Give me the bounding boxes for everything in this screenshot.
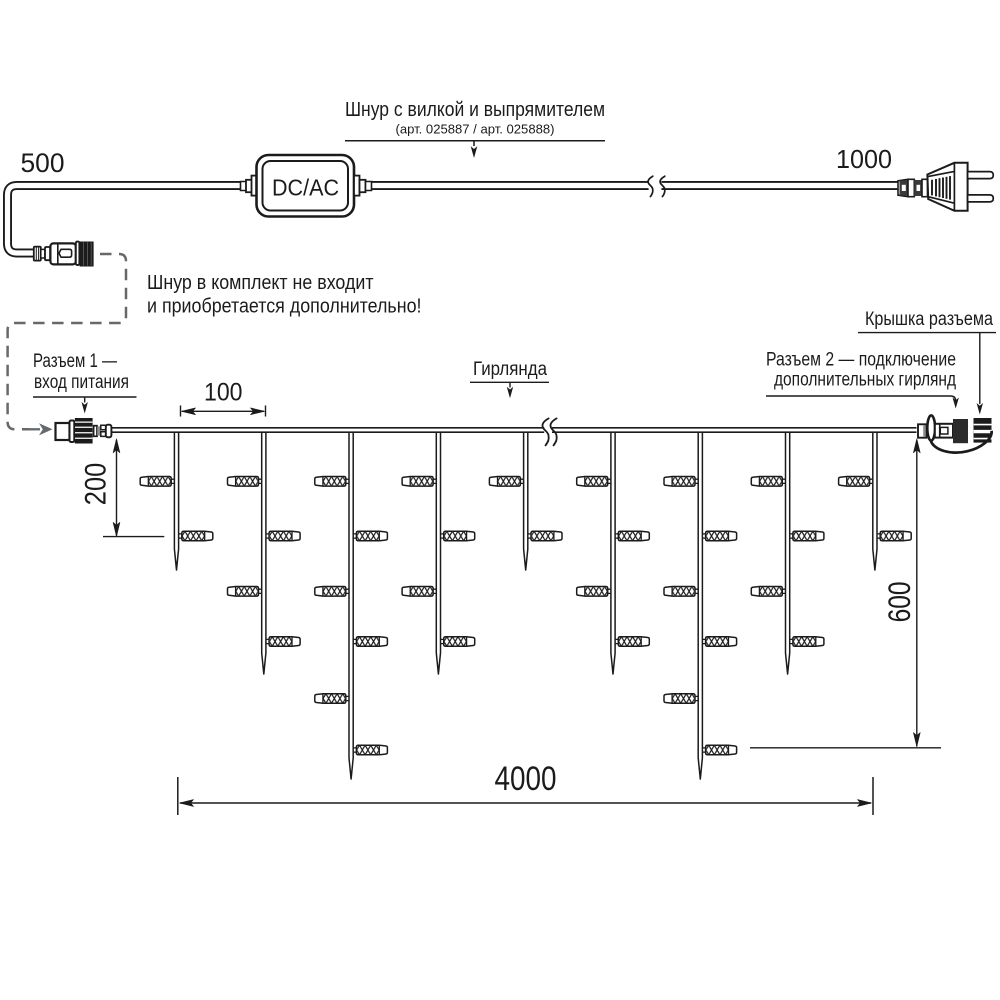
svg-text:вход питания: вход питания	[34, 372, 129, 393]
svg-text:дополнительных гирлянд: дополнительных гирлянд	[774, 370, 956, 391]
svg-text:Шнур в комплект не входит: Шнур в комплект не входит	[147, 271, 374, 294]
svg-text:Разъем 2 — подключение: Разъем 2 — подключение	[766, 350, 956, 371]
svg-text:Гирлянда: Гирлянда	[473, 359, 547, 380]
svg-text:600: 600	[881, 581, 917, 622]
svg-text:DC/AC: DC/AC	[272, 175, 339, 201]
svg-text:Разъем 1 —: Разъем 1 —	[33, 351, 117, 372]
svg-text:(арт. 025887 / арт. 025888): (арт. 025887 / арт. 025888)	[396, 122, 555, 137]
svg-text:4000: 4000	[495, 760, 557, 798]
svg-text:200: 200	[80, 463, 113, 506]
svg-text:500: 500	[21, 148, 65, 178]
svg-text:Шнур с вилкой и выпрямителем: Шнур с вилкой и выпрямителем	[345, 98, 605, 121]
svg-text:и приобретается дополнительно!: и приобретается дополнительно!	[147, 295, 422, 318]
svg-text:Крышка разъема: Крышка разъема	[865, 309, 993, 330]
svg-text:100: 100	[204, 379, 243, 407]
svg-text:1000: 1000	[836, 144, 892, 174]
